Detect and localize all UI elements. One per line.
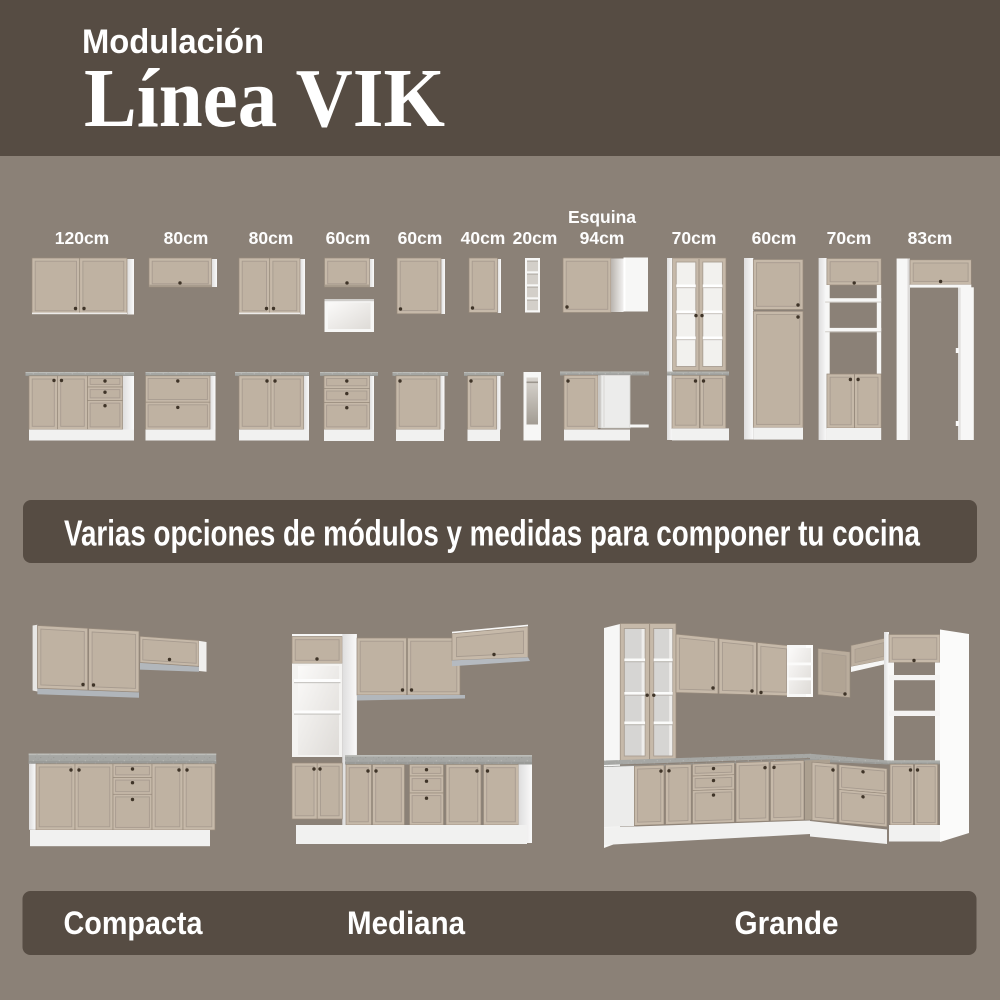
svg-text:60cm: 60cm — [326, 228, 371, 248]
svg-text:60cm: 60cm — [398, 228, 443, 248]
svg-text:80cm: 80cm — [249, 228, 294, 248]
svg-text:Compacta: Compacta — [64, 905, 203, 941]
svg-text:Línea VIK: Línea VIK — [84, 52, 445, 145]
svg-text:70cm: 70cm — [672, 228, 717, 248]
svg-text:70cm: 70cm — [827, 228, 872, 248]
svg-text:83cm: 83cm — [908, 228, 953, 248]
svg-text:120cm: 120cm — [55, 228, 110, 248]
svg-text:Mediana: Mediana — [347, 905, 465, 941]
svg-text:60cm: 60cm — [752, 228, 797, 248]
svg-text:80cm: 80cm — [164, 228, 209, 248]
svg-text:40cm: 40cm — [461, 228, 506, 248]
svg-text:Esquina: Esquina — [568, 207, 636, 227]
svg-text:Grande: Grande — [735, 905, 839, 941]
svg-text:20cm: 20cm — [513, 228, 558, 248]
svg-text:94cm: 94cm — [580, 228, 625, 248]
svg-text:Varias opciones de módulos y m: Varias opciones de módulos y medidas par… — [64, 513, 921, 554]
